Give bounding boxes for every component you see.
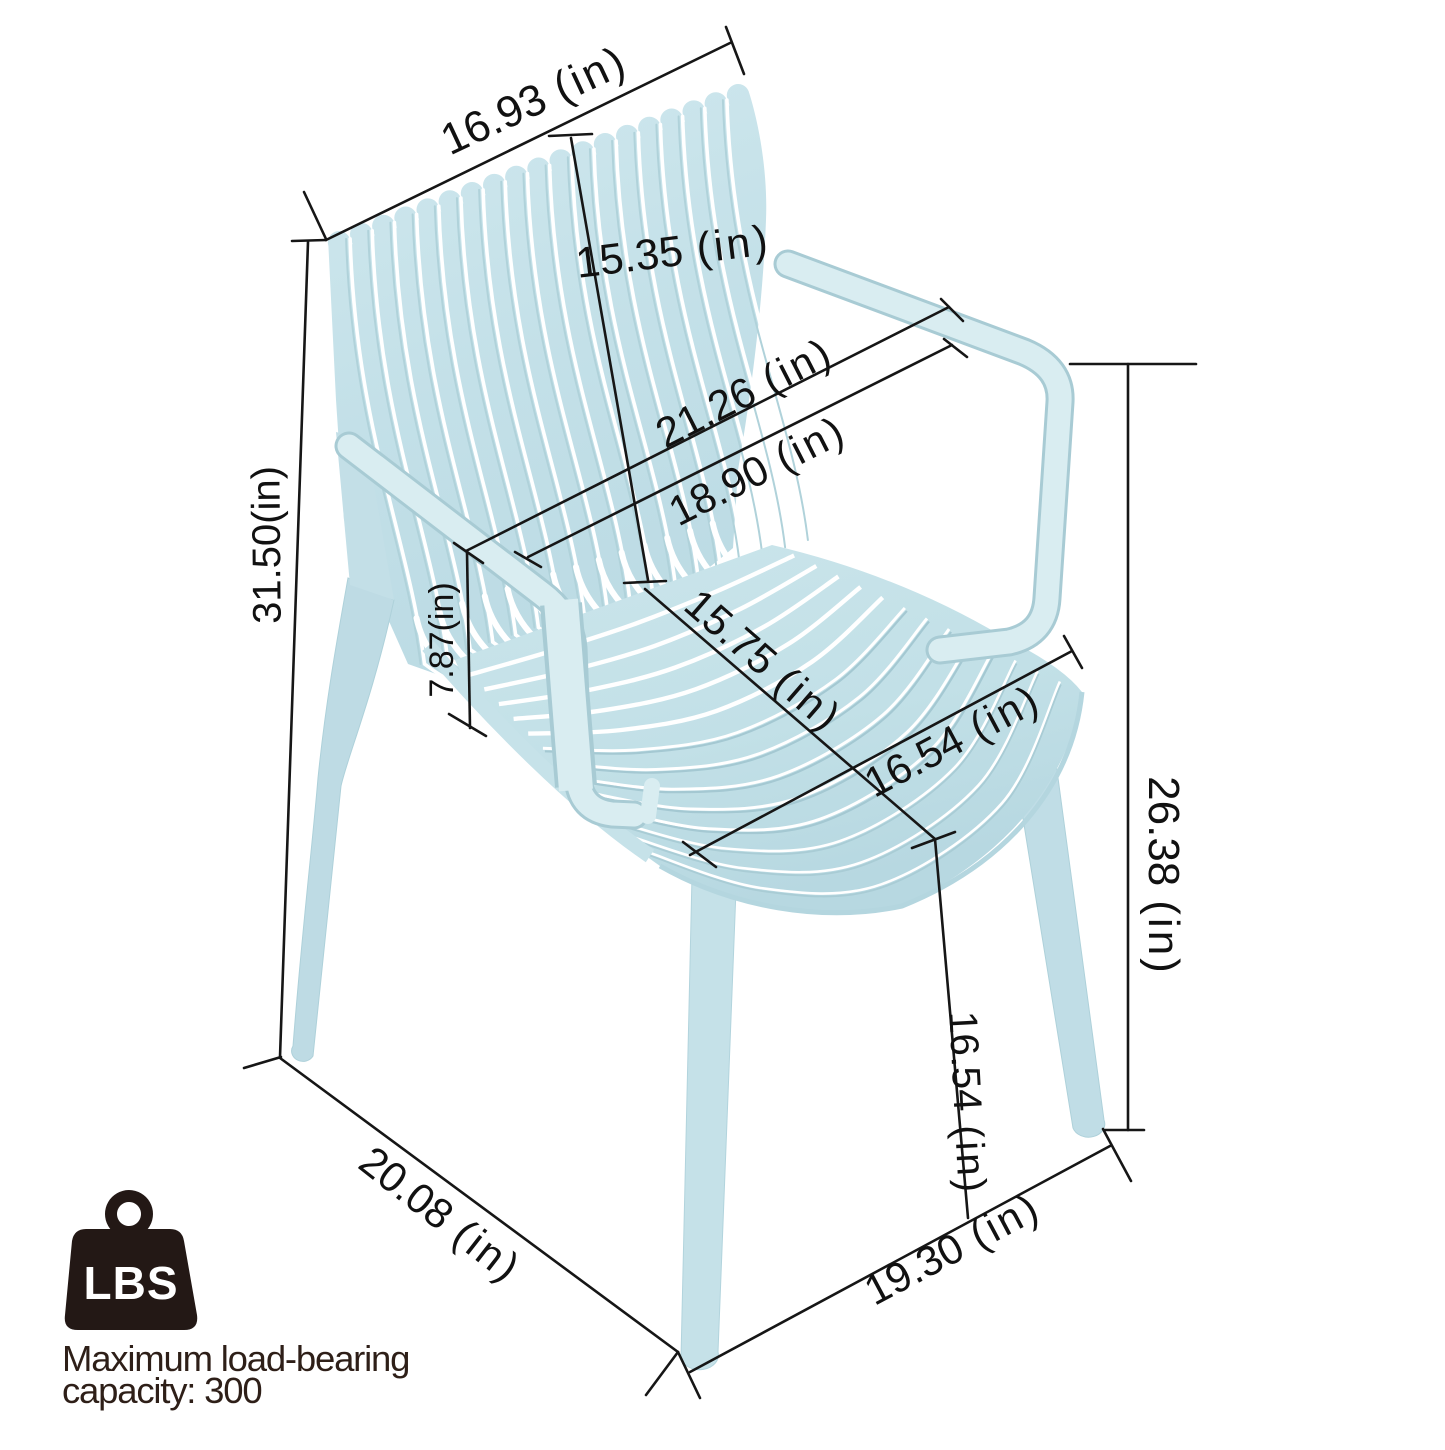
svg-text:capacity: 300: capacity: 300 <box>62 1370 261 1411</box>
svg-text:26.38(in): 26.38(in) <box>1139 776 1188 976</box>
svg-text:7.87(in): 7.87(in) <box>423 582 461 697</box>
svg-text:LBS: LBS <box>84 1257 179 1309</box>
svg-text:31.50(in): 31.50(in) <box>244 466 289 624</box>
